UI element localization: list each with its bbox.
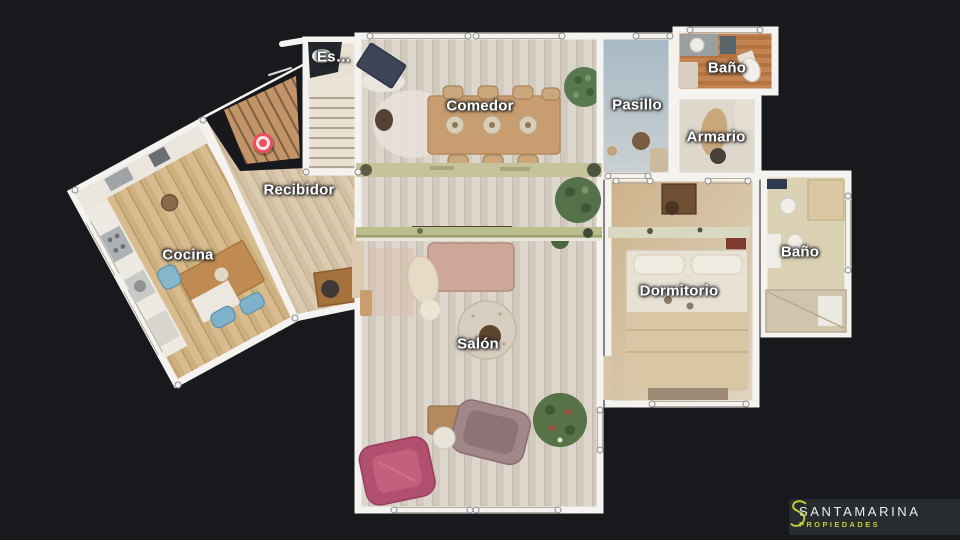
- brand-watermark: SANTAMARINA PROPIEDADES: [789, 499, 960, 535]
- plant: [533, 393, 587, 447]
- room-label-bano-superior[interactable]: Baño: [708, 60, 746, 77]
- pillow: [634, 255, 684, 274]
- room-label-dormitorio[interactable]: Dormitorio: [640, 283, 719, 300]
- room-label-salon[interactable]: Salón: [457, 336, 499, 353]
- place-settings: [446, 116, 537, 134]
- sofa: [428, 243, 514, 291]
- room-label-escalera[interactable]: Es…: [317, 49, 351, 66]
- room-label-pasillo[interactable]: Pasillo: [612, 97, 662, 114]
- door-opening: [352, 236, 364, 298]
- bath-cabinet: [808, 180, 844, 220]
- floorplan-svg: [0, 0, 960, 540]
- side-table: [433, 427, 455, 449]
- s-logo-icon: [789, 499, 809, 529]
- room-label-bano-derecho[interactable]: Baño: [781, 244, 819, 261]
- pillow: [692, 255, 742, 274]
- brand-name: SANTAMARINA: [799, 505, 921, 518]
- room-label-cocina[interactable]: Cocina: [162, 247, 213, 264]
- bed-bench: [648, 388, 728, 400]
- room-label-armario[interactable]: Armario: [687, 129, 746, 146]
- floorplan-viewport[interactable]: Es…ComedorBañoPasilloArmarioRecibidorCoc…: [0, 0, 960, 540]
- brand-tagline: PROPIEDADES: [799, 521, 921, 529]
- washbasin: [780, 198, 796, 214]
- room-label-recibidor[interactable]: Recibidor: [264, 182, 335, 199]
- room-label-comedor[interactable]: Comedor: [446, 98, 513, 115]
